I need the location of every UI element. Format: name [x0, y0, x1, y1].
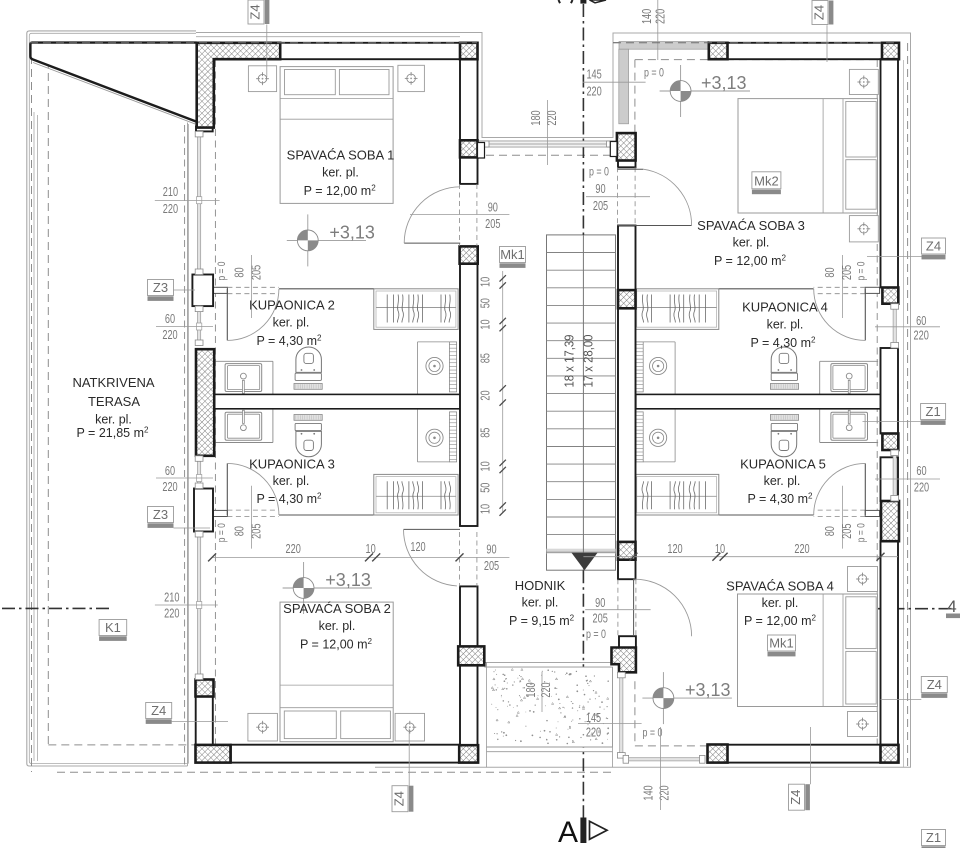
svg-text:P = 4,30 m2: P = 4,30 m2: [750, 335, 816, 350]
svg-text:K1: K1: [105, 620, 121, 635]
svg-text:140: 140: [639, 9, 654, 24]
svg-text:P = 12,00 m2: P = 12,00 m2: [304, 183, 377, 198]
svg-text:ker. pl.: ker. pl.: [273, 474, 310, 488]
svg-text:Z3: Z3: [153, 280, 168, 295]
svg-text:205: 205: [839, 265, 854, 280]
svg-text:10: 10: [478, 461, 493, 471]
svg-text:220: 220: [586, 84, 601, 99]
svg-text:ker. pl.: ker. pl.: [762, 596, 799, 610]
svg-text:Z4: Z4: [927, 677, 942, 692]
svg-text:140: 140: [641, 785, 656, 800]
svg-text:P = 9,15 m2: P = 9,15 m2: [509, 613, 575, 628]
svg-text:205: 205: [839, 524, 854, 539]
svg-text:120: 120: [410, 539, 425, 554]
svg-text:220: 220: [164, 606, 179, 621]
svg-text:HODNIK: HODNIK: [515, 578, 566, 593]
svg-text:60: 60: [165, 463, 175, 478]
svg-text:P = 12,00 m2: P = 12,00 m2: [300, 637, 373, 652]
svg-text:220: 220: [657, 785, 672, 800]
svg-text:SPAVAĆA SOBA 2: SPAVAĆA SOBA 2: [283, 601, 391, 616]
svg-text:p = 0: p = 0: [216, 523, 228, 542]
svg-text:210: 210: [164, 590, 179, 605]
svg-text:90: 90: [486, 542, 496, 557]
svg-text:85: 85: [478, 353, 493, 363]
svg-text:+3,13: +3,13: [325, 570, 371, 590]
svg-text:60: 60: [916, 313, 926, 328]
svg-text:205: 205: [593, 198, 608, 213]
svg-text:ker. pl.: ker. pl.: [522, 595, 559, 609]
svg-text:220: 220: [162, 479, 177, 494]
svg-text:ker. pl.: ker. pl.: [273, 315, 310, 329]
svg-text:Z1: Z1: [926, 404, 941, 419]
svg-text:10: 10: [366, 541, 376, 556]
svg-text:210: 210: [163, 184, 178, 199]
svg-text:50: 50: [478, 298, 493, 308]
svg-text:220: 220: [914, 328, 929, 343]
svg-text:ker. pl.: ker. pl.: [767, 317, 804, 331]
svg-text:220: 220: [286, 541, 301, 556]
svg-text:p = 0: p = 0: [643, 727, 663, 739]
svg-text:KUPAONICA 5: KUPAONICA 5: [740, 457, 826, 472]
svg-text:180: 180: [523, 682, 538, 697]
svg-text:220: 220: [653, 9, 668, 24]
svg-text:120: 120: [667, 541, 682, 556]
svg-text:60: 60: [916, 463, 926, 478]
svg-text:80: 80: [232, 267, 247, 277]
svg-text:P = 4,30 m2: P = 4,30 m2: [256, 333, 322, 348]
svg-text:145: 145: [586, 710, 601, 725]
svg-text:TERASA: TERASA: [88, 394, 140, 409]
svg-text:Z1: Z1: [926, 830, 941, 845]
svg-text:p = 0: p = 0: [644, 67, 664, 79]
svg-text:Z4: Z4: [151, 703, 166, 718]
svg-text:220: 220: [586, 725, 601, 740]
svg-text:80: 80: [822, 267, 837, 277]
svg-text:ker. pl.: ker. pl.: [319, 619, 356, 633]
svg-text:ker. pl.: ker. pl.: [322, 165, 359, 179]
svg-text:P = 12,00 m2: P = 12,00 m2: [744, 613, 817, 628]
svg-text:205: 205: [485, 216, 500, 231]
svg-text:KUPAONICA 3: KUPAONICA 3: [249, 457, 335, 472]
svg-text:ker. pl.: ker. pl.: [733, 235, 770, 249]
svg-text:Mk1: Mk1: [500, 247, 525, 262]
svg-text:220: 220: [914, 480, 929, 495]
svg-text:Z4: Z4: [788, 790, 803, 805]
svg-text:205: 205: [248, 524, 263, 539]
svg-text:Mk2: Mk2: [754, 173, 779, 188]
svg-text:80: 80: [822, 526, 837, 536]
svg-text:P = 4,30 m2: P = 4,30 m2: [747, 491, 813, 506]
svg-text:205: 205: [484, 558, 499, 573]
svg-text:85: 85: [478, 428, 493, 438]
svg-text:220: 220: [794, 541, 809, 556]
svg-text:P = 4,30 m2: P = 4,30 m2: [256, 491, 322, 506]
svg-text:Z4: Z4: [392, 791, 407, 806]
svg-text:ker. pl.: ker. pl.: [764, 474, 801, 488]
svg-text:10: 10: [478, 319, 493, 329]
svg-text:p = 0: p = 0: [216, 262, 228, 281]
svg-text:+3,13: +3,13: [685, 680, 731, 700]
svg-text:A: A: [558, 816, 578, 848]
svg-text:220: 220: [163, 201, 178, 216]
svg-text:Z4: Z4: [248, 4, 263, 19]
svg-text:p = 0: p = 0: [856, 523, 868, 542]
svg-text:KUPAONICA 4: KUPAONICA 4: [742, 299, 828, 314]
svg-text:205: 205: [248, 265, 263, 280]
svg-text:P = 21,85 m2: P = 21,85 m2: [76, 425, 149, 440]
svg-text:+3,13: +3,13: [701, 73, 747, 93]
svg-text:18 x 17,39: 18 x 17,39: [562, 335, 577, 388]
svg-text:90: 90: [595, 181, 605, 196]
svg-text:220: 220: [538, 682, 553, 697]
svg-text:205: 205: [593, 610, 608, 625]
svg-text:90: 90: [595, 595, 605, 610]
svg-text:145: 145: [586, 67, 601, 82]
svg-text:17 x 28,00: 17 x 28,00: [581, 335, 596, 388]
svg-text:SPAVAĆA SOBA 4: SPAVAĆA SOBA 4: [726, 579, 834, 594]
svg-text:SPAVAĆA SOBA 3: SPAVAĆA SOBA 3: [697, 218, 805, 233]
svg-text:10: 10: [478, 277, 493, 287]
svg-text:60: 60: [165, 311, 175, 326]
svg-text:+3,13: +3,13: [329, 222, 375, 242]
svg-text:20: 20: [478, 390, 493, 400]
svg-text:p = 0: p = 0: [589, 166, 609, 178]
svg-text:Z3: Z3: [153, 507, 168, 522]
svg-text:P = 12,00 m2: P = 12,00 m2: [714, 253, 787, 268]
svg-text:ker. pl.: ker. pl.: [95, 412, 132, 426]
svg-text:SPAVAĆA SOBA 1: SPAVAĆA SOBA 1: [287, 148, 395, 163]
svg-text:KUPAONICA 2: KUPAONICA 2: [249, 297, 335, 312]
svg-text:NATKRIVENA: NATKRIVENA: [72, 375, 154, 390]
svg-text:220: 220: [162, 327, 177, 342]
svg-text:220: 220: [544, 110, 559, 125]
svg-text:Z4: Z4: [926, 239, 941, 254]
svg-text:Mk1: Mk1: [769, 636, 794, 651]
svg-text:4: 4: [947, 597, 956, 616]
svg-text:180: 180: [528, 110, 543, 125]
svg-text:90: 90: [488, 200, 498, 215]
svg-text:80: 80: [232, 526, 247, 536]
svg-text:p = 0: p = 0: [856, 262, 868, 281]
svg-text:10: 10: [478, 504, 493, 514]
svg-text:50: 50: [478, 483, 493, 493]
svg-text:p = 0: p = 0: [586, 629, 606, 641]
svg-text:Z4: Z4: [812, 5, 827, 20]
